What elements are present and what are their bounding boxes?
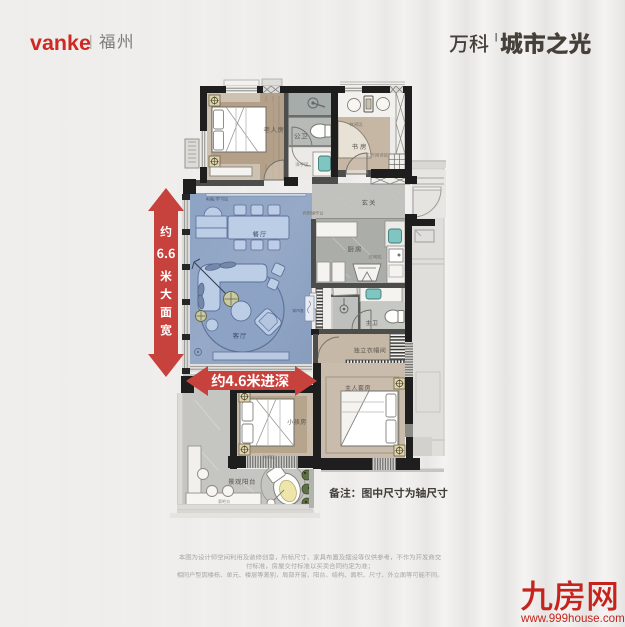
svg-text:vanke: vanke <box>30 31 91 55</box>
svg-text:www.999house.com: www.999house.com <box>520 612 625 625</box>
